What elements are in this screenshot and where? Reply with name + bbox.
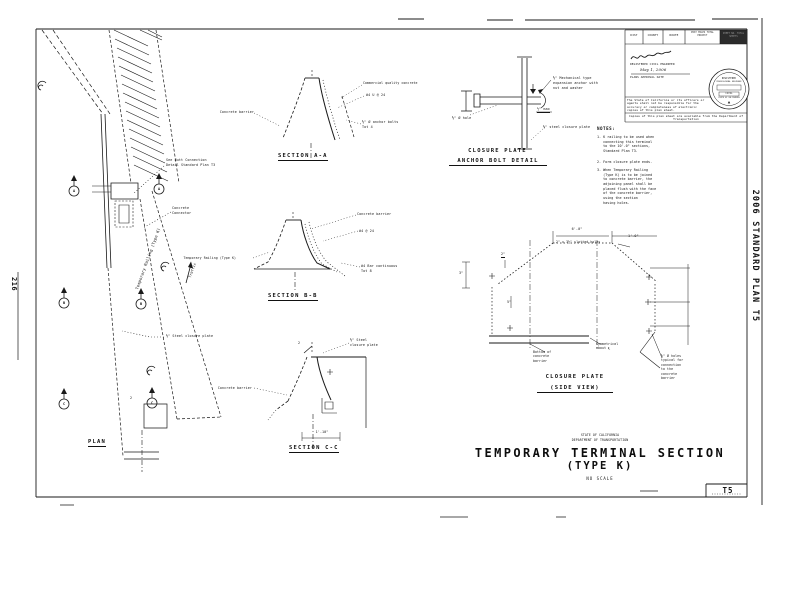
sv-bottom-label: Bottom of concrete barrier bbox=[533, 350, 551, 363]
cut-letter-a2: A bbox=[154, 187, 164, 191]
lifting-hook-icon bbox=[38, 81, 169, 375]
sb-bars-label: #4 @ 24 bbox=[359, 229, 374, 234]
closure-plate-side-view-linework bbox=[462, 231, 690, 368]
side-view-title-1: CLOSURE PLATE bbox=[530, 374, 620, 380]
sa-bars-label: #4 U @ 24 bbox=[366, 93, 385, 98]
sb-railing-label: Temporary Railing (Type K) bbox=[178, 256, 236, 260]
sc-bevel-dim: 2 bbox=[298, 341, 300, 346]
col-route: ROUTE bbox=[663, 34, 685, 38]
cut-letter-a1: A bbox=[69, 189, 79, 193]
anchor-detail-title-1: CLOSURE PLATE bbox=[455, 148, 540, 154]
col-sheets: SHEET NO. TOTAL SHEETS bbox=[720, 33, 747, 38]
footer-dept: DEPARTMENT OF TRANSPORTATION bbox=[500, 438, 700, 442]
sv-symm-label: Symmetrical about ℄ bbox=[596, 342, 618, 351]
section-b-title: SECTION B-B bbox=[268, 293, 318, 301]
cut-letter-b1: B bbox=[59, 301, 69, 305]
sa-concrete-label: Commercial quality concrete bbox=[363, 81, 418, 85]
sc-dim: 1'-10" bbox=[302, 430, 342, 435]
sb-barrier-label: Concrete barrier bbox=[357, 212, 391, 217]
sc-barrier-label: Concrete barrier bbox=[206, 386, 252, 391]
disclaimer-text: The State of California or its officers … bbox=[627, 99, 709, 113]
notes-heading: NOTES: bbox=[597, 126, 615, 132]
standard-plan-sheet: 216 2006 STANDARD PLAN T5 DIST COUNTY RO… bbox=[0, 0, 792, 612]
seal-text-civil: CIVIL bbox=[711, 93, 747, 96]
section-c-title: SECTION C-C bbox=[289, 445, 339, 453]
sheet-subtitle: (TYPE K) bbox=[455, 460, 745, 472]
strip-note: Copies of this plan sheet are available … bbox=[627, 115, 745, 122]
plans-approval-label: PLANS APPROVAL DATE bbox=[630, 76, 664, 80]
seal-text-state: STATE OF CALIFORNIA bbox=[711, 97, 747, 99]
registered-engineer-label: REGISTERED CIVIL ENGINEER bbox=[630, 63, 675, 67]
engineer-seal bbox=[709, 69, 749, 109]
section-a-title: SECTION A-A bbox=[278, 153, 328, 161]
no-scale-label: NO SCALE bbox=[560, 476, 640, 482]
note-3: 3. When Temporary Railing (Type K) is to… bbox=[597, 168, 656, 206]
col-county: COUNTY bbox=[643, 34, 663, 38]
sa-barrier-label: Concrete barrier bbox=[206, 110, 254, 115]
col-postmiles: POST MILES TOTAL PROJECT bbox=[686, 32, 719, 37]
sc-plate-label: ⅜" Steel closure plate bbox=[350, 338, 378, 348]
sv-holes-note: ⅝" Ø holes typical for connection to the… bbox=[661, 354, 683, 381]
note-1: 1. K railing to be used when connecting … bbox=[597, 135, 654, 154]
edge-plan-label: 2006 STANDARD PLAN T5 bbox=[748, 161, 760, 351]
plan-view-linework bbox=[38, 30, 221, 472]
sv-dim-top: 6'-0" bbox=[557, 227, 597, 232]
cut-letter-b2: B bbox=[136, 302, 146, 306]
anchor-bolt-detail-linework bbox=[461, 57, 552, 149]
sv-slots-label: 2" x 3½" slotted holes bbox=[556, 240, 600, 244]
section-b-linework bbox=[253, 212, 360, 290]
footer-state: STATE OF CALIFORNIA bbox=[500, 433, 700, 437]
sv-dim-right: 1'-0" bbox=[628, 234, 639, 239]
sv-dim-3: 3" bbox=[459, 271, 463, 276]
side-view-title-2: (SIDE VIEW) bbox=[537, 385, 613, 393]
hatch-existing-railing bbox=[114, 30, 168, 181]
sv-dim-5: 5" bbox=[507, 300, 511, 305]
cut-letter-c2: C bbox=[147, 401, 157, 405]
ad-max-dim: ½" max bbox=[537, 107, 550, 113]
note-2: 2. Form closure plate ends. bbox=[597, 160, 652, 165]
sb-cont-label: #4 Bar continuous Tot 8 bbox=[361, 264, 397, 274]
col-dist: DIST bbox=[625, 34, 643, 38]
concrete-connector-label: Concrete Connector bbox=[172, 206, 191, 216]
plan-dim-2: 2 bbox=[130, 396, 132, 401]
section-a-linework bbox=[254, 70, 364, 158]
plan-title: PLAN bbox=[88, 439, 106, 447]
ad-plate-label: ⅜" steel closure plate bbox=[543, 125, 590, 130]
butt-connection-label: See Butt Connection Detail Standard Plan… bbox=[166, 158, 215, 168]
page-number: 216 bbox=[8, 277, 18, 291]
sheet-number: T5 bbox=[712, 486, 744, 497]
cut-letter-c1: C bbox=[59, 402, 69, 406]
seal-text-2: PROFESSIONAL ENGINEER bbox=[713, 81, 745, 83]
ad-hole-label: ⅝" Ø hole bbox=[452, 116, 471, 121]
sv-dim-2: 2" bbox=[501, 252, 505, 258]
sheet-title: TEMPORARY TERMINAL SECTION bbox=[455, 446, 745, 460]
signature-squiggle bbox=[631, 51, 671, 59]
drawing-linework bbox=[0, 0, 792, 612]
approval-date-script: May 1, 2006 bbox=[640, 67, 666, 73]
plan-closure-plate-label: ⅜" Steel closure plate bbox=[166, 334, 213, 339]
anchor-detail-title-2: ANCHOR BOLT DETAIL bbox=[449, 158, 547, 166]
sa-anchors-label: ⅝" Ø anchor bolts Tot 4 bbox=[362, 120, 398, 130]
ad-anchor-label: ⅝" Mechanical type expansion anchor with… bbox=[553, 76, 598, 90]
